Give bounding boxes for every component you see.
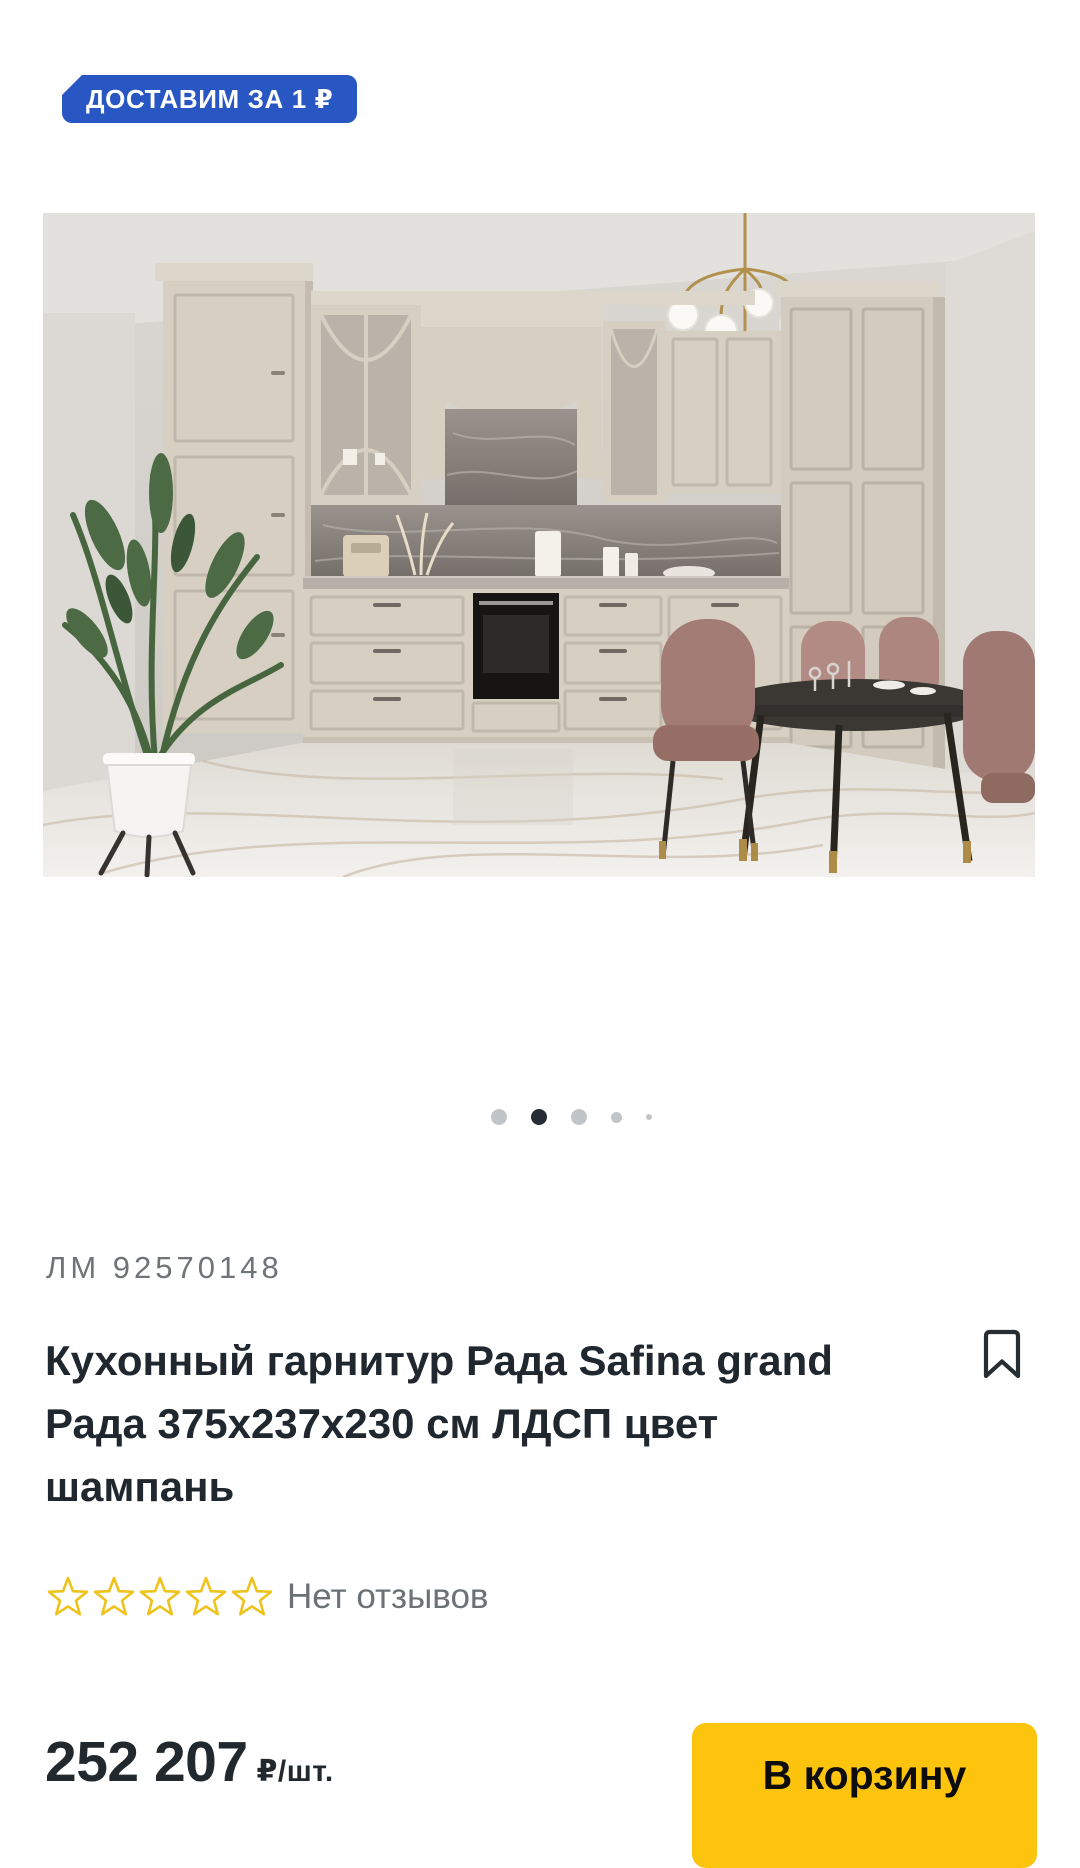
product-title-line: Рада 375х237х230 см ЛДСП цвет [45, 1392, 945, 1455]
price-unit: ₽/шт. [257, 1754, 334, 1789]
product-title: Кухонный гарнитур Рада Safina grand Рада… [45, 1329, 945, 1518]
star-icon [91, 1574, 137, 1620]
star-icon [183, 1574, 229, 1620]
star-icon [137, 1574, 183, 1620]
bookmark-button[interactable] [978, 1328, 1026, 1386]
carousel-dot[interactable] [646, 1114, 652, 1120]
product-photo-illustration [43, 213, 1035, 877]
add-to-cart-button[interactable]: В корзину [692, 1723, 1037, 1868]
bookmark-icon [980, 1328, 1024, 1382]
product-sku: ЛМ 92570148 [46, 1248, 283, 1288]
price-amount: 252 207 [45, 1732, 248, 1792]
left-tall-cabinet [155, 263, 313, 733]
star-icon [45, 1574, 91, 1620]
carousel-dot[interactable] [611, 1112, 622, 1123]
add-to-cart-label: В корзину [763, 1752, 967, 1799]
carousel-dot-active[interactable] [531, 1109, 547, 1125]
delivery-badge: ДОСТАВИМ ЗА 1 ₽ [62, 75, 357, 123]
carousel-dots [491, 1109, 652, 1125]
product-title-line: Кухонный гарнитур Рада Safina grand [45, 1329, 945, 1392]
product-image[interactable] [43, 213, 1035, 877]
delivery-badge-label: ДОСТАВИМ ЗА 1 ₽ [86, 84, 333, 115]
reviews-label: Нет отзывов [287, 1577, 489, 1617]
carousel-dot[interactable] [571, 1109, 587, 1125]
carousel-dot[interactable] [491, 1109, 507, 1125]
product-title-line: шампань [45, 1455, 945, 1518]
rating-row[interactable]: Нет отзывов [45, 1574, 489, 1620]
price-row: 252 207 ₽/шт. [45, 1732, 334, 1792]
star-icon [229, 1574, 275, 1620]
